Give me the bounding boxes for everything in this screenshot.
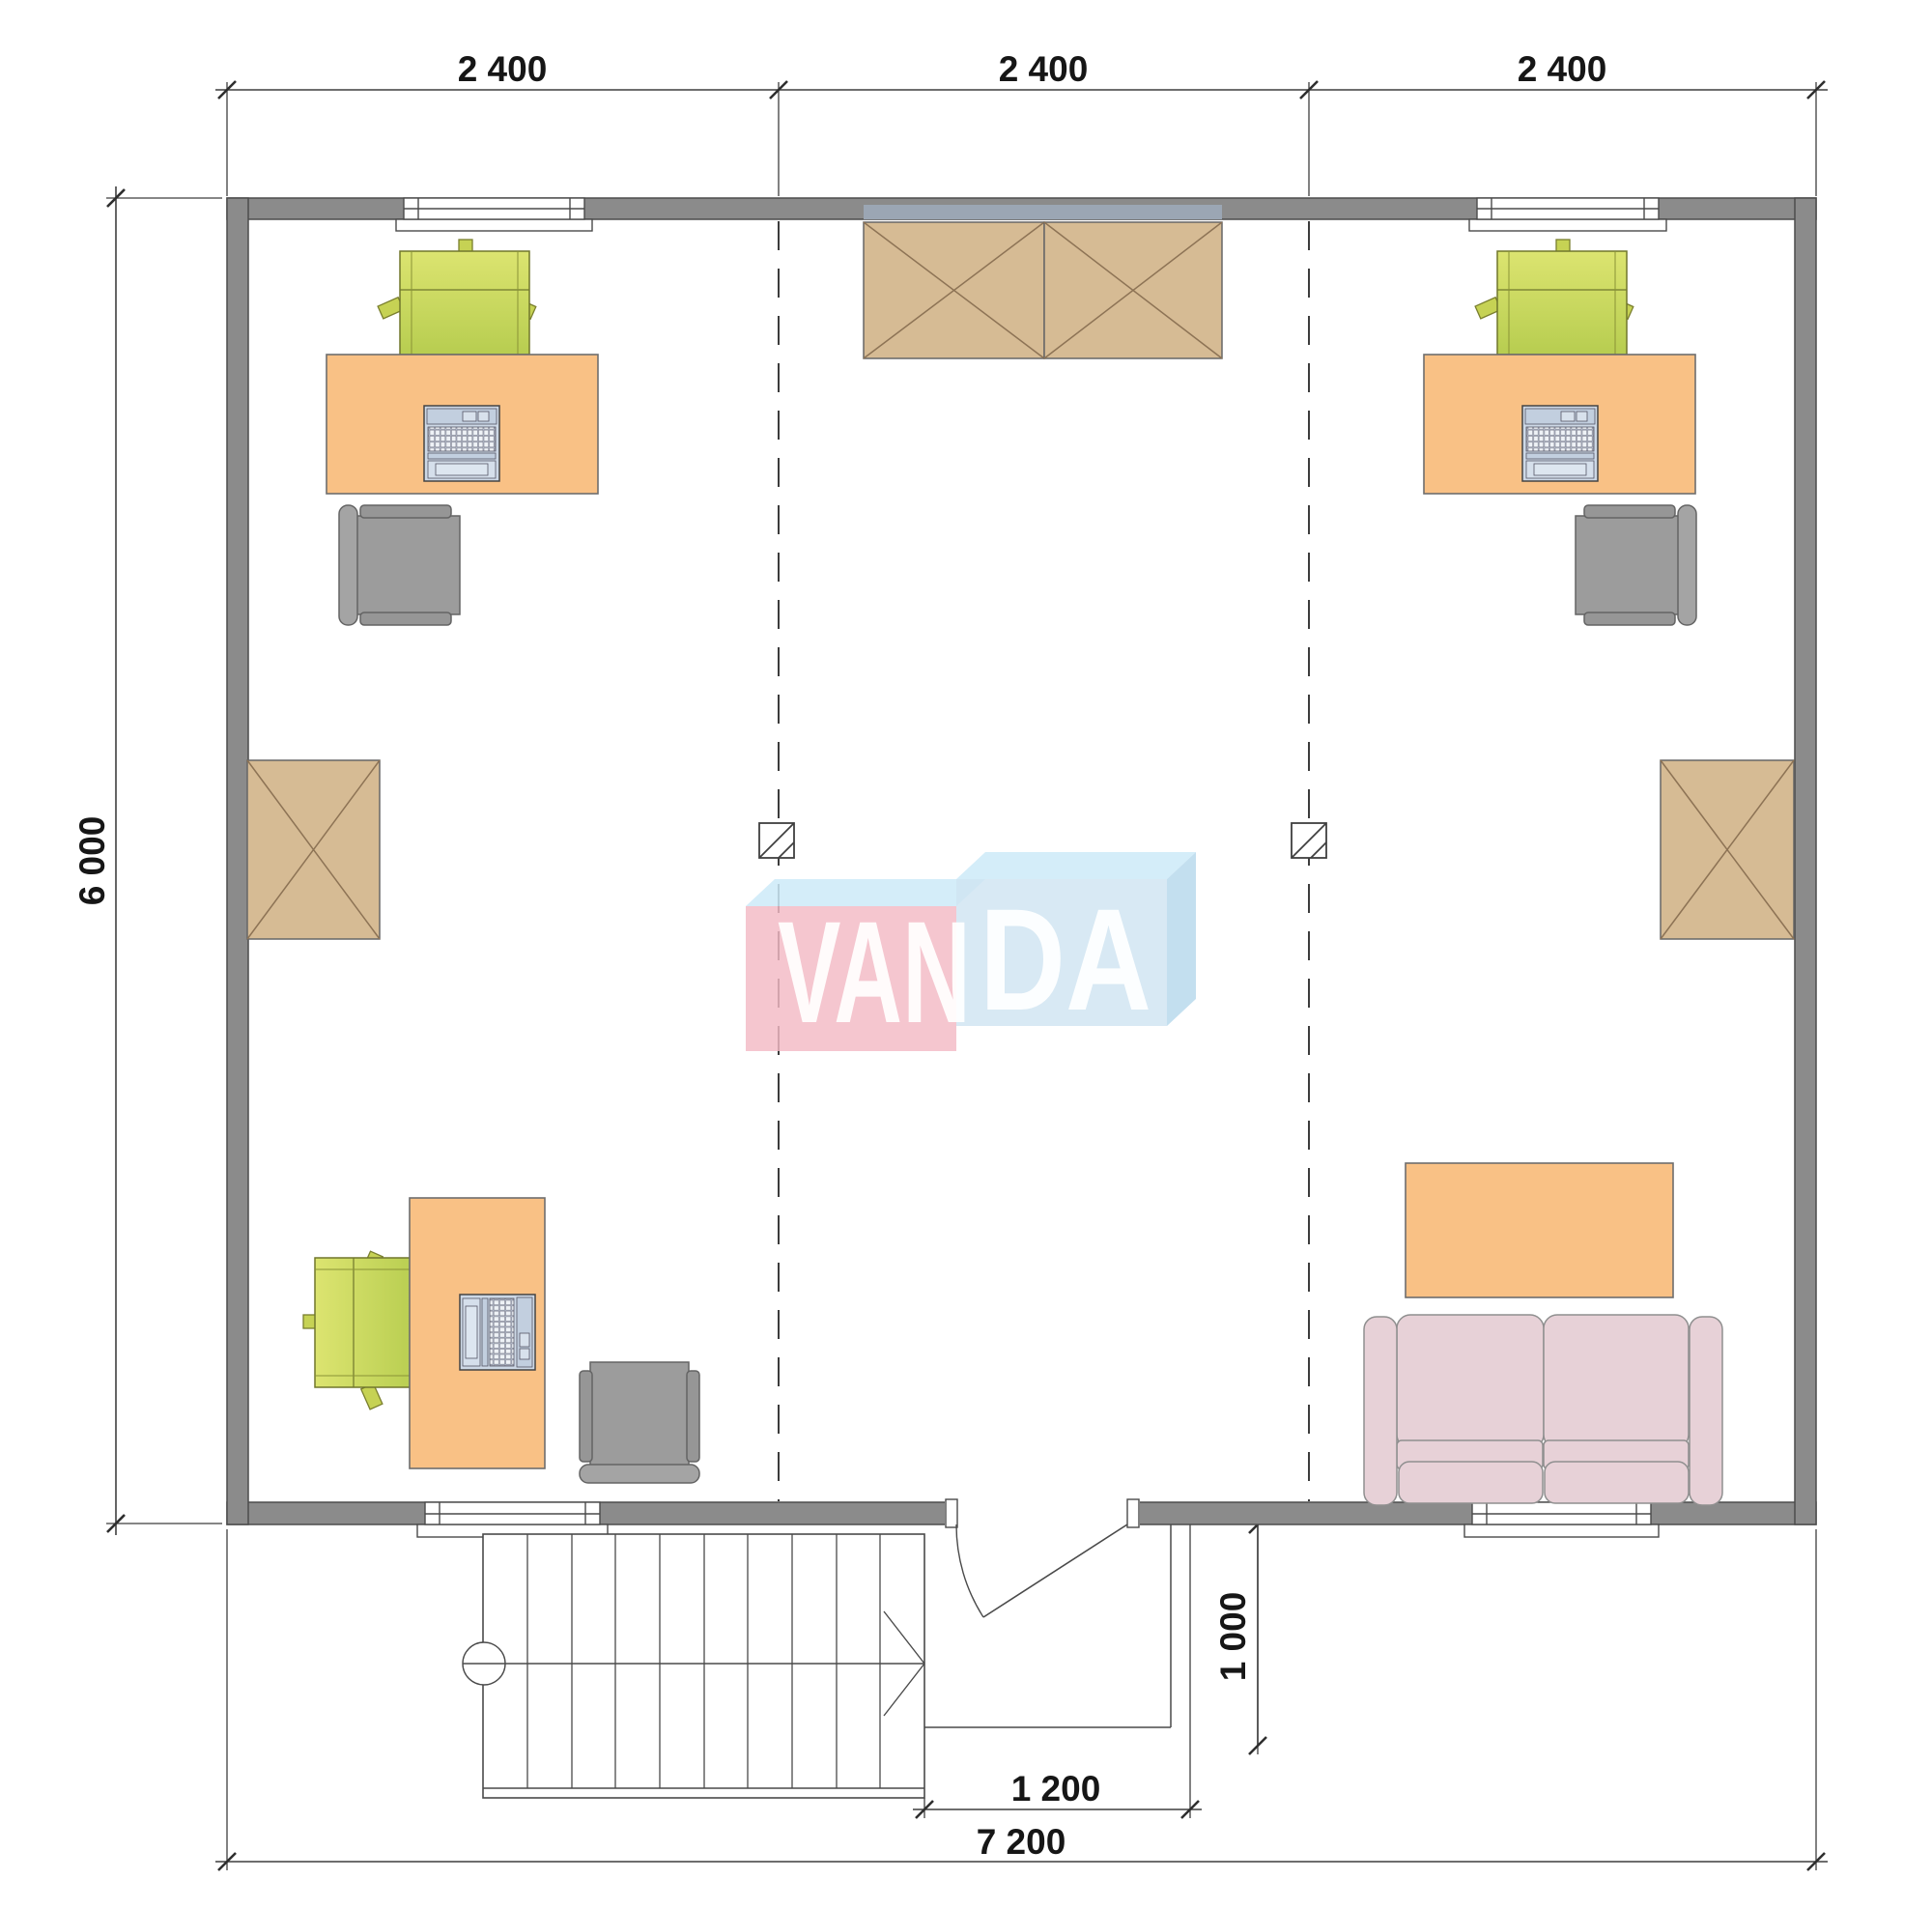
column-symbol-right [1292,823,1326,858]
workstation-top-right [1424,240,1696,625]
logo-bevel-top-right [956,852,1196,879]
logo-text-right: DA [980,878,1151,1040]
door-jamb-left [946,1499,957,1527]
entry-porch [924,1524,1171,1727]
wall-shadow-band [864,205,1222,219]
cabinet-left-wall [247,760,380,939]
dim-porch-depth: 1 000 [1213,1592,1253,1682]
door-jamb-right [1127,1499,1139,1527]
door-leaf [983,1524,1127,1617]
floor-plan-page: VAN DA 2 400 2 400 2 400 6 000 1 200 7 2… [0,0,1932,1908]
vanda-watermark: VAN DA [746,852,1196,1053]
sofa-back-cushion [1397,1315,1544,1448]
wall-right [1795,198,1816,1524]
sofa-armrest [1690,1317,1722,1505]
dim-top-2: 2 400 [999,49,1089,89]
column-symbol-left [759,823,794,858]
sofa-seat-cushion [1545,1462,1689,1503]
window-bottom-left [417,1502,608,1537]
floor-plan-canvas: VAN DA 2 400 2 400 2 400 6 000 1 200 7 2… [0,0,1932,1908]
exterior-stairs [463,1534,924,1798]
sofa [1364,1315,1722,1505]
dim-top-3: 2 400 [1518,49,1607,89]
lounge-area [1364,1163,1722,1505]
wall-left [227,198,248,1524]
sofa-armrest [1364,1317,1397,1505]
window-top-left [396,198,592,231]
window-bottom-right [1464,1502,1659,1537]
sofa-back-cushion [1544,1315,1689,1448]
entry-door [945,1498,1140,1617]
door-opening [945,1498,1140,1528]
cabinet-right-wall [1661,760,1794,939]
logo-bevel-side-right [1167,852,1196,1026]
workstation-bottom-left [303,1198,699,1483]
wardrobe-top-center [864,222,1222,358]
dim-top-1: 2 400 [458,49,548,89]
coffee-table [1406,1163,1673,1297]
dim-left-height: 6 000 [72,816,112,906]
door-swing-arc [956,1524,983,1617]
sofa-seat-cushion [1399,1462,1543,1503]
logo-text-left: VAN [778,891,971,1053]
dim-total-width: 7 200 [977,1822,1066,1862]
dim-entry-width: 1 200 [1011,1769,1101,1808]
workstation-top-left [327,240,598,625]
window-top-right [1469,198,1666,231]
